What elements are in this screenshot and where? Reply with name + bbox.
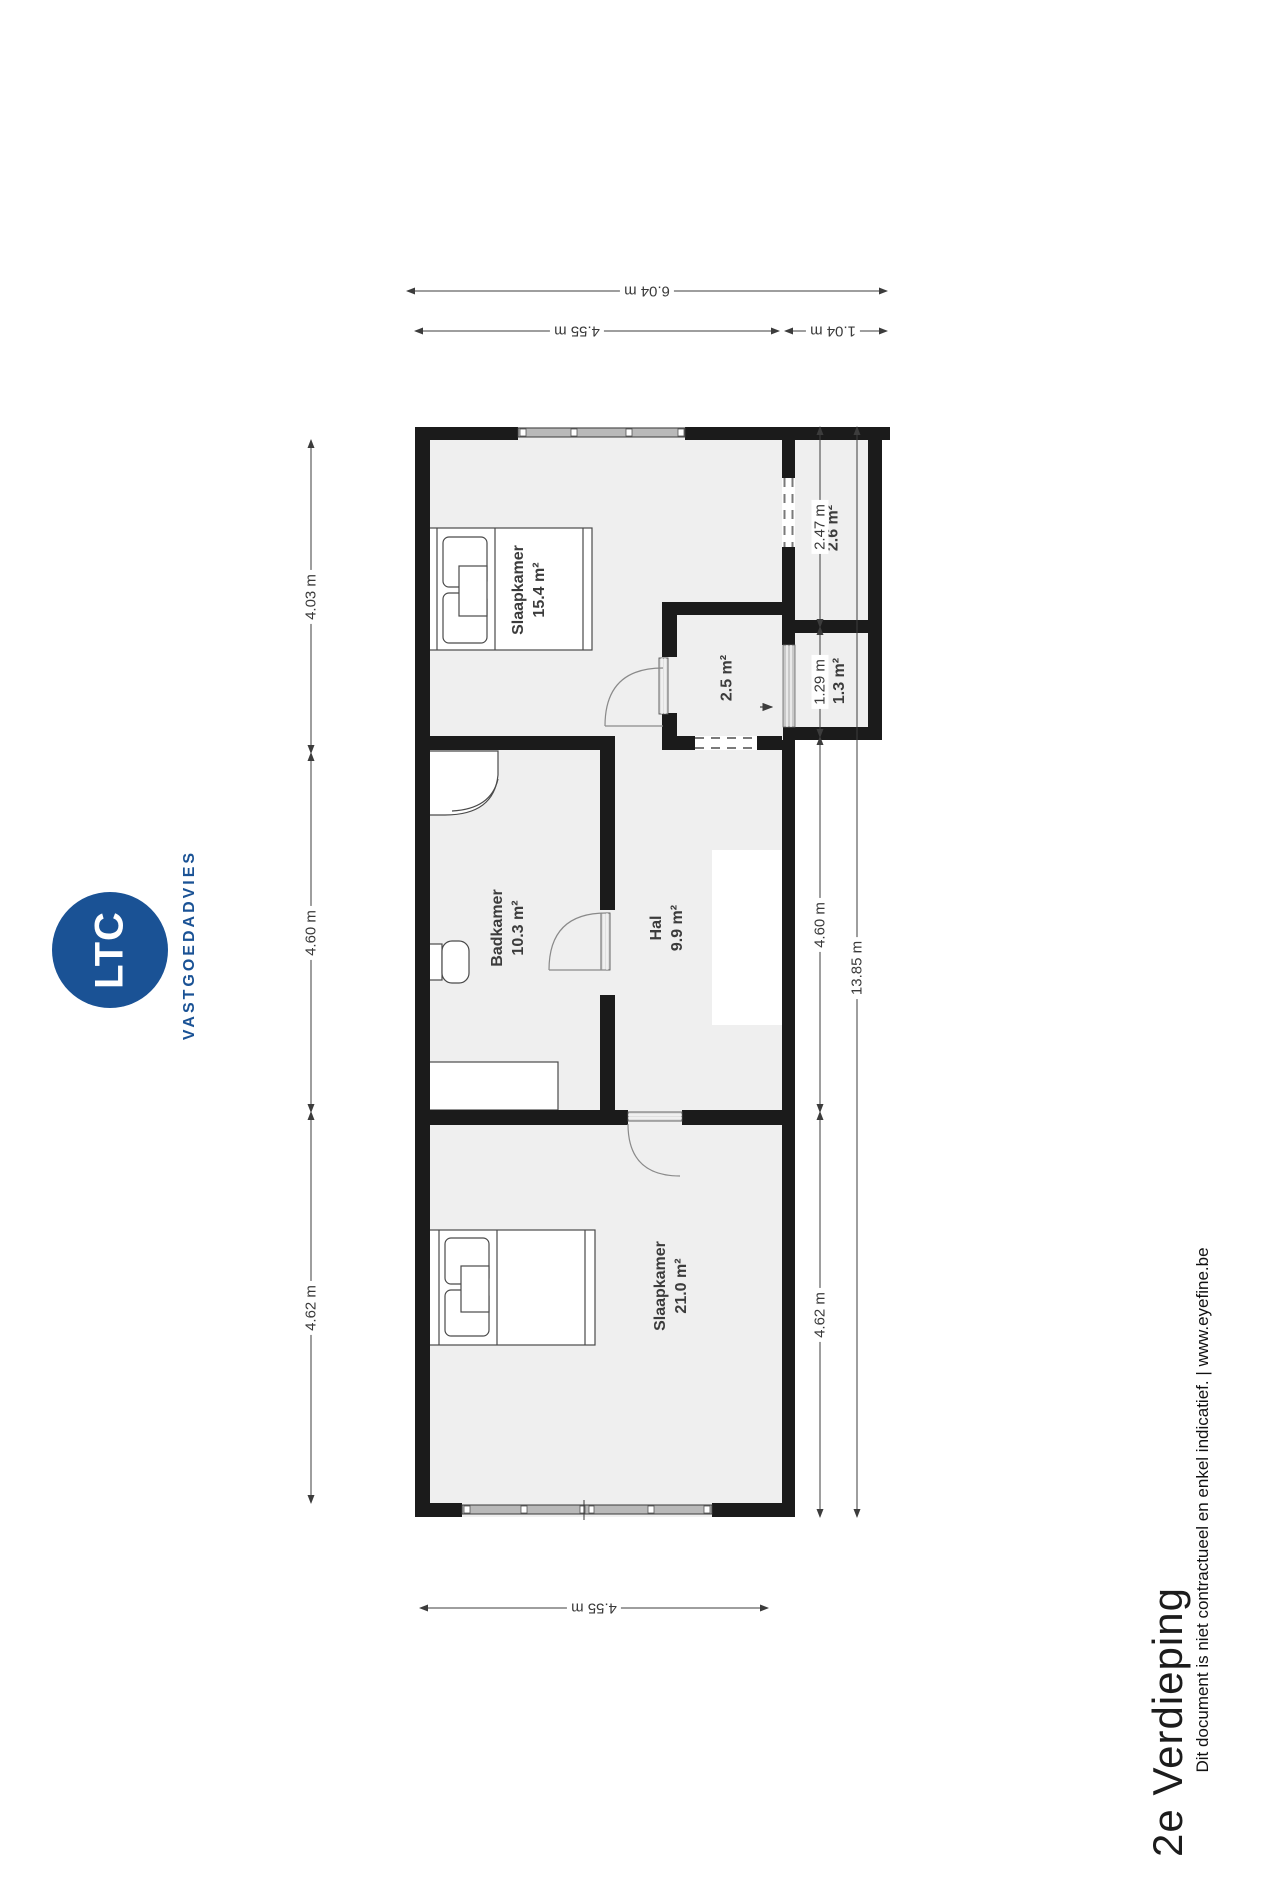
- dim-top-left: 4.55 m: [550, 323, 604, 340]
- dim-right-4: 4.62 m: [812, 1288, 829, 1342]
- dim-left-3: 4.62 m: [303, 1281, 320, 1335]
- dim-right-1: 2.47 m: [812, 500, 829, 554]
- dim-right-2: 1.29 m: [812, 655, 829, 709]
- ltc-logo-text: LTC: [88, 911, 133, 989]
- hal-void: [712, 850, 782, 1025]
- disclaimer: Dit document is niet contractueel en enk…: [1193, 1247, 1213, 1772]
- ltc-logo-subtext: VASTGOEDADVIES: [181, 850, 199, 1040]
- dashed-opening-entrance: [695, 736, 757, 750]
- room-label-hal: Hal 9.9 m²: [647, 905, 689, 951]
- bed-slaapkamer2: [427, 1230, 595, 1345]
- room-label-slaapkamer1: Slaapkamer 15.4 m²: [509, 545, 551, 635]
- toilet: [429, 941, 469, 983]
- room-label-kast: 2.5 m²: [718, 655, 739, 701]
- dim-top-total: 6.04 m: [620, 283, 674, 300]
- room-label-slaapkamer2: Slaapkamer 21.0 m²: [651, 1241, 693, 1331]
- bathtub: [429, 1062, 558, 1110]
- dim-bottom: 4.55 m: [567, 1600, 621, 1617]
- top-window: [518, 428, 685, 437]
- dim-left-2: 4.60 m: [303, 906, 320, 960]
- lift-sliding-door: [783, 645, 795, 727]
- dim-right-3: 4.60 m: [812, 898, 829, 952]
- room-label-badkamer: Badkamer 10.3 m²: [488, 889, 530, 966]
- dashed-opening-storage: [782, 478, 795, 547]
- page-title: 2e Verdieping: [1144, 1587, 1192, 1857]
- dim-left-1: 4.03 m: [303, 570, 320, 624]
- dim-top-right: 1.04 m: [806, 323, 860, 340]
- floorplan-page: Slaapkamer 15.4 m² 2.6 m² 2.5 m² Lift 1.…: [0, 0, 1264, 1900]
- dim-right-total: 13.85 m: [849, 937, 866, 999]
